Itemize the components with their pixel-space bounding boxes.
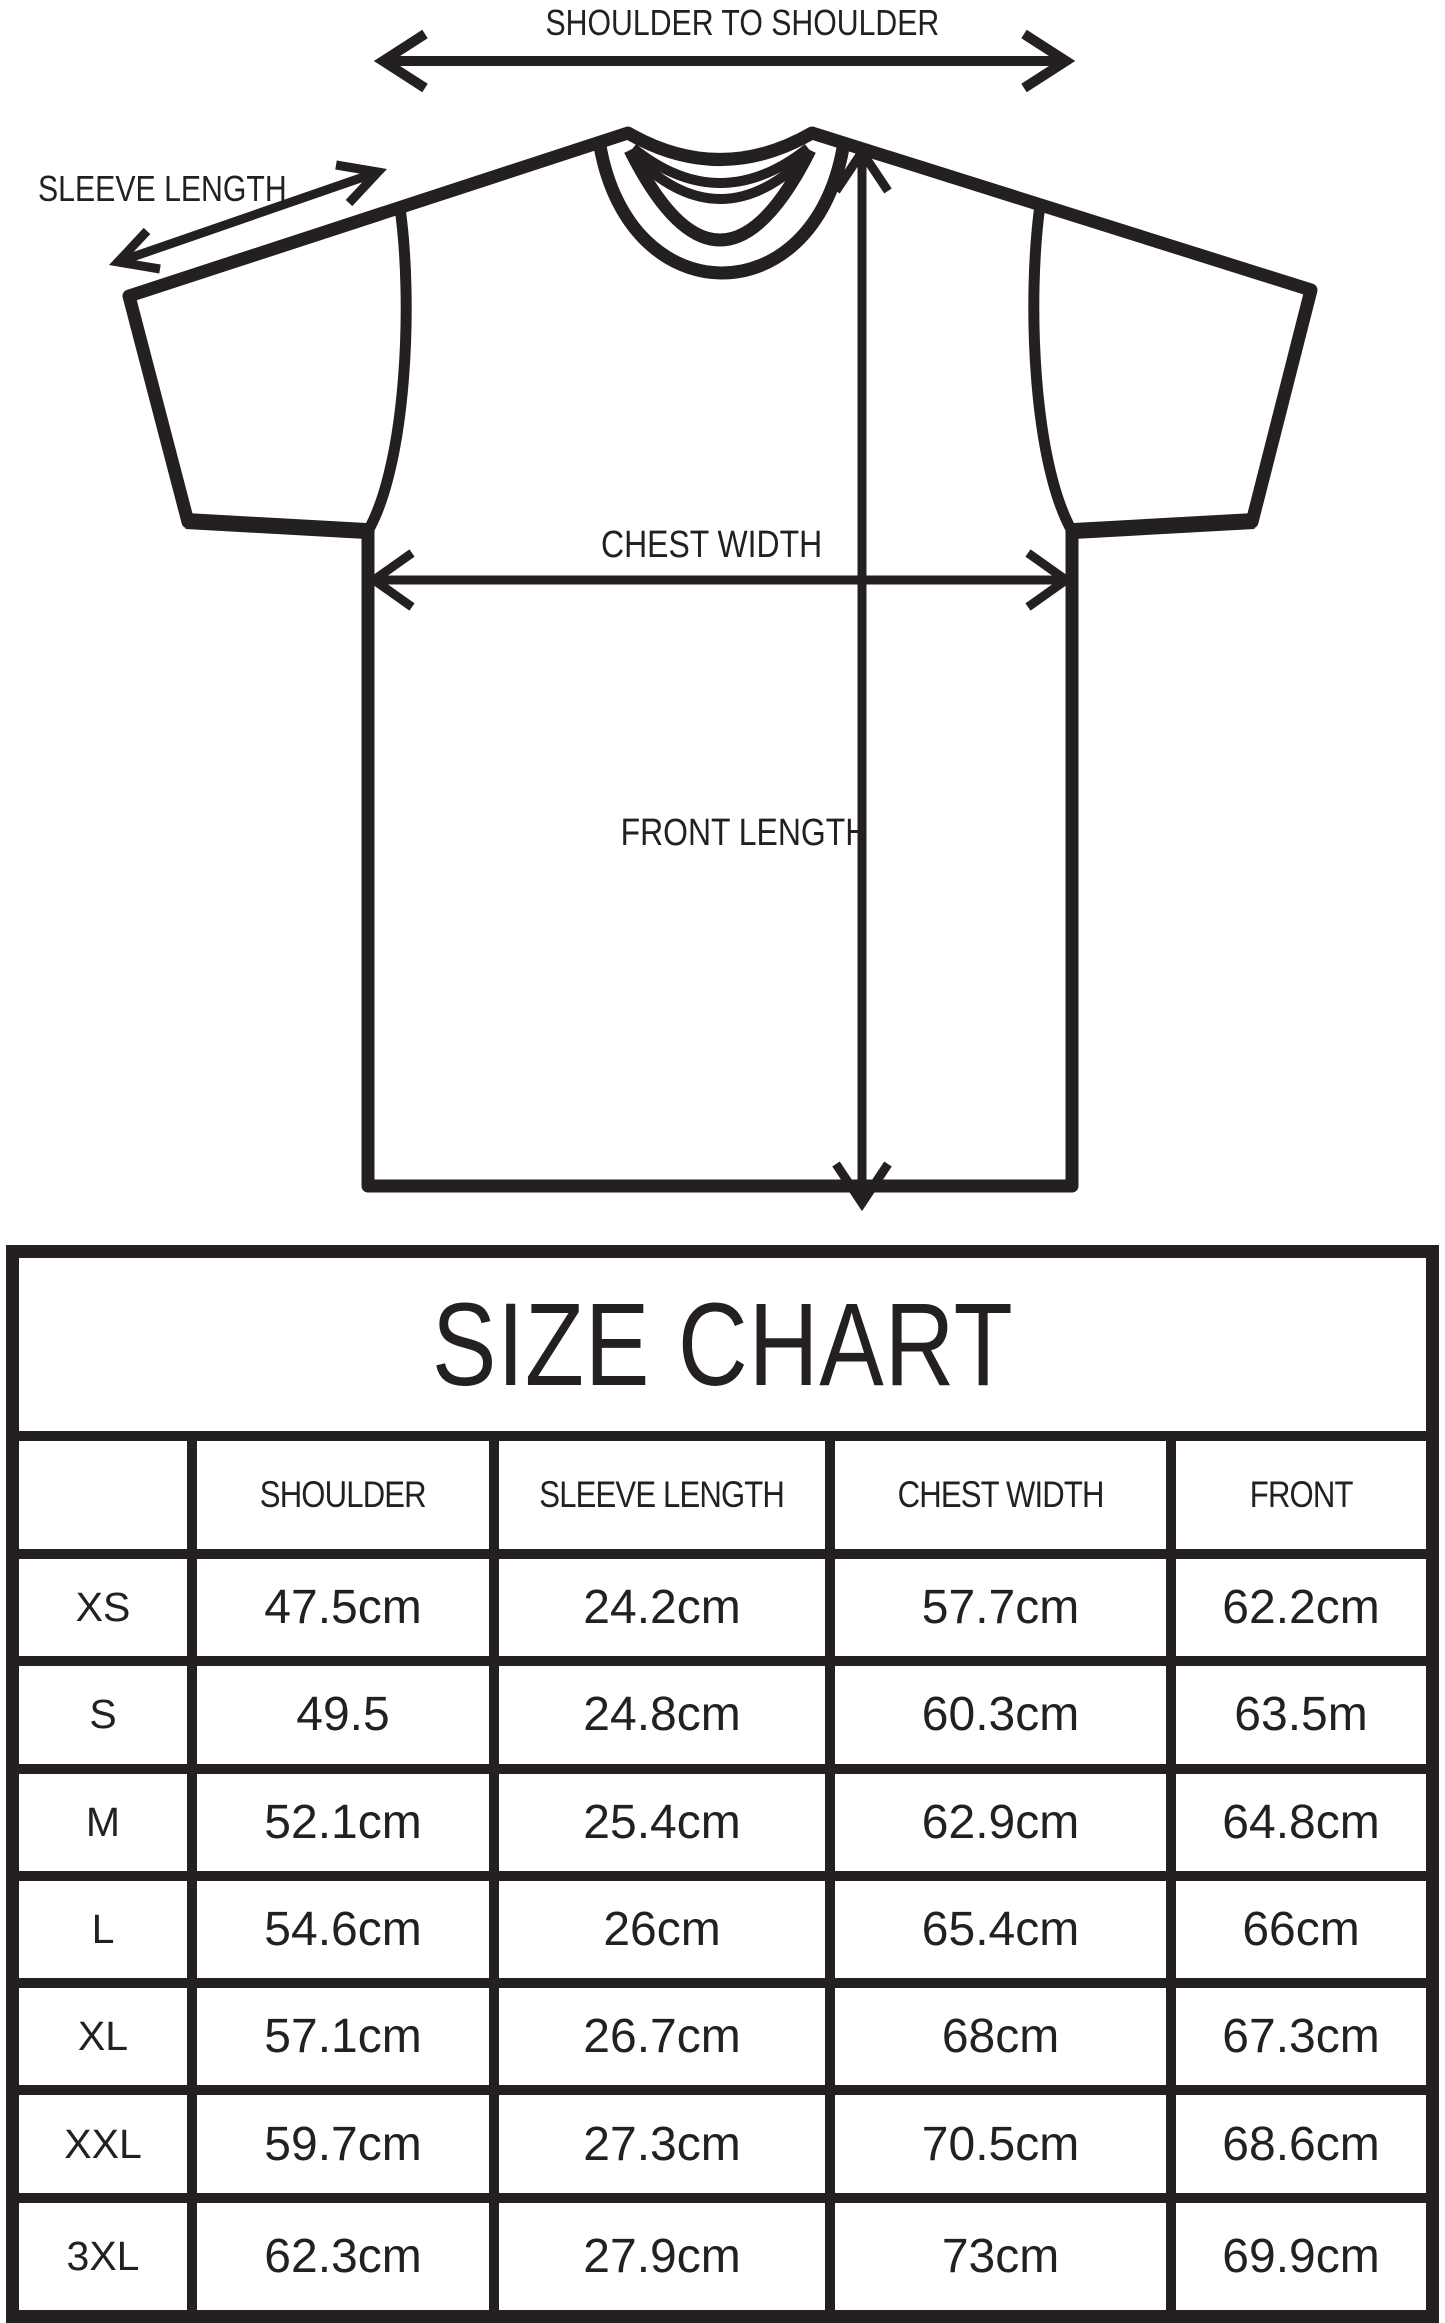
header-shoulder-text: SHOULDER [260, 1474, 426, 1516]
row-xl-shoulder: 57.1cm [197, 1988, 499, 2095]
row-m-sleeve: 25.4cm [499, 1774, 835, 1881]
row-l-sleeve: 26cm [499, 1881, 835, 1988]
row-xxl-front: 68.6cm [1176, 2095, 1426, 2202]
row-s-shoulder: 49.5 [197, 1666, 499, 1773]
header-chest-width-text: CHEST WIDTH [897, 1474, 1103, 1516]
header-cell-empty [19, 1441, 197, 1559]
sleeve-length-label-text: SLEEVE LENGTH [38, 168, 287, 210]
row-m-chest: 62.9cm [835, 1774, 1176, 1881]
tshirt-outline [129, 133, 1311, 1186]
size-chart-table: SHOULDER SLEEVE LENGTH CHEST WIDTH FRONT… [19, 1441, 1426, 2310]
row-l-front: 66cm [1176, 1881, 1426, 1988]
row-m-shoulder: 52.1cm [197, 1774, 499, 1881]
front-length-arrow [836, 152, 888, 1203]
row-m-front: 64.8cm [1176, 1774, 1426, 1881]
row-xl-sleeve: 26.7cm [499, 1988, 835, 2095]
size-chart-title: SIZE CHART [432, 1277, 1014, 1413]
header-cell-front: FRONT [1176, 1441, 1426, 1559]
row-xs-sleeve: 24.2cm [499, 1559, 835, 1666]
row-xxl-shoulder: 59.7cm [197, 2095, 499, 2202]
front-length-label: FRONT LENGTH [594, 812, 894, 855]
header-cell-chest-width: CHEST WIDTH [835, 1441, 1176, 1559]
shoulder-to-shoulder-label: SHOULDER TO SHOULDER [452, 2, 1032, 44]
size-chart-section: SIZE CHART SHOULDER SLEEVE LENGTH CHEST … [6, 1245, 1439, 2323]
row-3xl-size: 3XL [19, 2203, 197, 2310]
row-s-chest: 60.3cm [835, 1666, 1176, 1773]
row-l-shoulder: 54.6cm [197, 1881, 499, 1988]
row-xs-chest: 57.7cm [835, 1559, 1176, 1666]
row-xxl-chest: 70.5cm [835, 2095, 1176, 2202]
shoulder-to-shoulder-label-text: SHOULDER TO SHOULDER [545, 2, 939, 44]
row-xl-size: XL [19, 1988, 197, 2095]
header-sleeve-length-text: SLEEVE LENGTH [540, 1474, 785, 1516]
row-m-size: M [19, 1774, 197, 1881]
header-front-text: FRONT [1250, 1474, 1353, 1516]
size-chart-page: SHOULDER TO SHOULDER SLEEVE LENGTH CHEST… [0, 0, 1445, 2323]
row-xl-chest: 68cm [835, 1988, 1176, 2095]
chest-width-label-text: CHEST WIDTH [601, 524, 822, 567]
row-3xl-shoulder: 62.3cm [197, 2203, 499, 2310]
row-xxl-size: XXL [19, 2095, 197, 2202]
row-3xl-chest: 73cm [835, 2203, 1176, 2310]
row-xs-size: XS [19, 1559, 197, 1666]
row-xs-shoulder: 47.5cm [197, 1559, 499, 1666]
row-s-sleeve: 24.8cm [499, 1666, 835, 1773]
sleeve-length-label: SLEEVE LENGTH [38, 168, 298, 210]
row-l-chest: 65.4cm [835, 1881, 1176, 1988]
chest-width-label: CHEST WIDTH [562, 524, 862, 567]
row-s-front: 63.5m [1176, 1666, 1426, 1773]
header-cell-shoulder: SHOULDER [197, 1441, 499, 1559]
row-xxl-sleeve: 27.3cm [499, 2095, 835, 2202]
row-l-size: L [19, 1881, 197, 1988]
header-cell-sleeve-length: SLEEVE LENGTH [499, 1441, 835, 1559]
front-length-label-text: FRONT LENGTH [620, 812, 868, 855]
row-s-size: S [19, 1666, 197, 1773]
row-xl-front: 67.3cm [1176, 1988, 1426, 2095]
row-3xl-sleeve: 27.9cm [499, 2203, 835, 2310]
row-3xl-front: 69.9cm [1176, 2203, 1426, 2310]
row-xs-front: 62.2cm [1176, 1559, 1426, 1666]
size-chart-title-row: SIZE CHART [19, 1258, 1426, 1441]
